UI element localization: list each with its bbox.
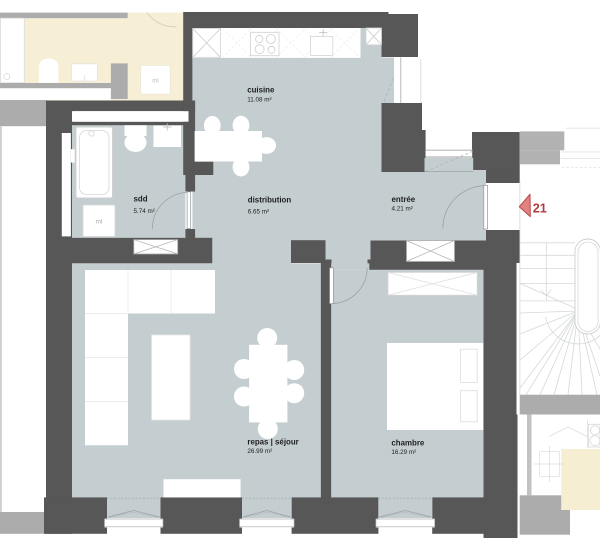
svg-text:6.65 m²: 6.65 m²: [248, 208, 269, 215]
svg-text:distribution: distribution: [248, 196, 292, 205]
svg-text:26.99 m²: 26.99 m²: [247, 448, 272, 455]
svg-text:sdd: sdd: [134, 195, 148, 204]
svg-text:5.74 m²: 5.74 m²: [134, 208, 155, 215]
svg-text:cuisine: cuisine: [247, 86, 275, 95]
svg-text:ml: ml: [96, 219, 103, 226]
svg-text:ml: ml: [152, 79, 158, 85]
svg-text:chambre: chambre: [391, 439, 425, 448]
svg-text:21: 21: [533, 202, 547, 216]
svg-text:entrée: entrée: [392, 195, 416, 204]
svg-text:11.08 m²: 11.08 m²: [247, 96, 271, 103]
svg-text:16.29 m²: 16.29 m²: [391, 449, 416, 456]
svg-text:repas | séjour: repas | séjour: [247, 437, 298, 446]
svg-text:4.21 m²: 4.21 m²: [392, 206, 413, 213]
